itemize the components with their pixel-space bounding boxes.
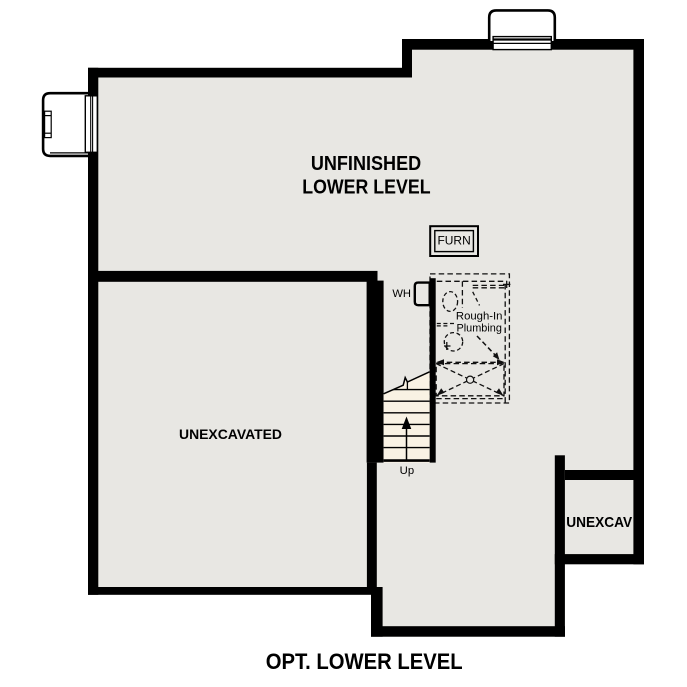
- svg-text:LOWER LEVEL: LOWER LEVEL: [302, 177, 430, 199]
- svg-text:WH: WH: [392, 288, 411, 300]
- svg-text:FURN: FURN: [438, 234, 471, 248]
- svg-text:Plumbing: Plumbing: [457, 323, 503, 335]
- svg-text:UNFINISHED: UNFINISHED: [311, 153, 421, 175]
- svg-text:Rough-In: Rough-In: [456, 311, 503, 323]
- svg-text:Up: Up: [400, 465, 414, 477]
- svg-text:UNEXCAV: UNEXCAV: [566, 514, 632, 531]
- svg-text:UNEXCAVATED: UNEXCAVATED: [179, 426, 282, 442]
- svg-text:OPT. LOWER LEVEL: OPT. LOWER LEVEL: [266, 649, 463, 674]
